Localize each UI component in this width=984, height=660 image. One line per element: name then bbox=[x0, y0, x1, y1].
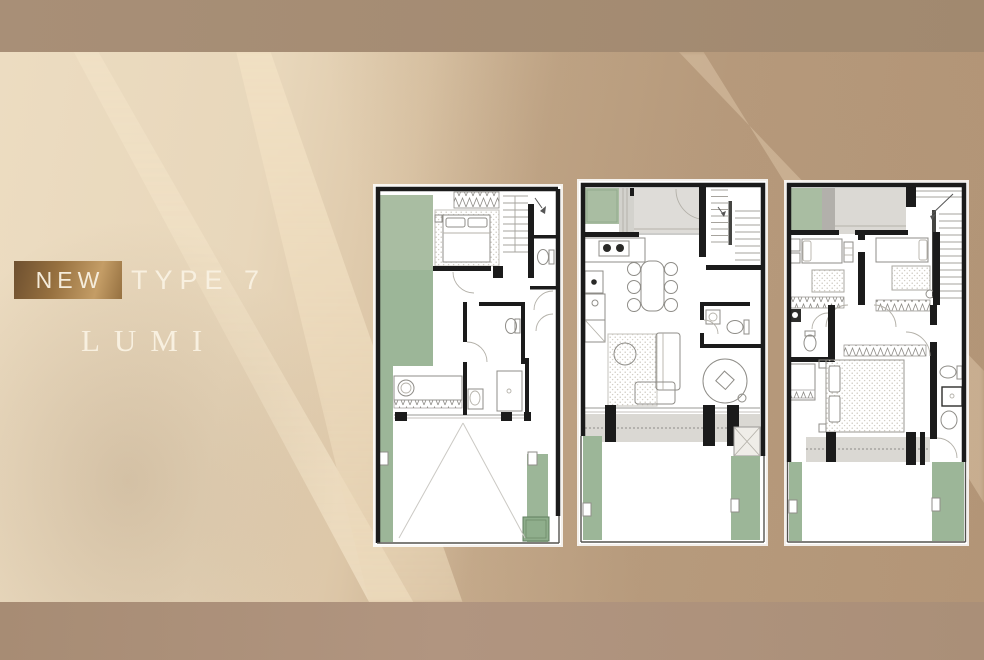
floor-plan-left-drawing bbox=[375, 186, 561, 545]
type-label: TYPE 7 bbox=[131, 261, 266, 299]
floor-plan-left bbox=[375, 186, 561, 545]
top-strip bbox=[789, 185, 916, 235]
top-band bbox=[0, 0, 984, 52]
floor-plan-middle bbox=[579, 181, 766, 544]
project-name: LUMI bbox=[81, 323, 216, 359]
title-block: NEW TYPE 7 bbox=[14, 261, 266, 299]
poster: NEW TYPE 7 LUMI bbox=[0, 0, 984, 660]
floor-plan-middle-drawing bbox=[579, 181, 766, 544]
new-badge: NEW bbox=[14, 261, 122, 299]
floor-plan-right bbox=[786, 182, 967, 544]
floor-plan-right-drawing bbox=[786, 182, 967, 544]
bottom-band bbox=[0, 602, 984, 660]
